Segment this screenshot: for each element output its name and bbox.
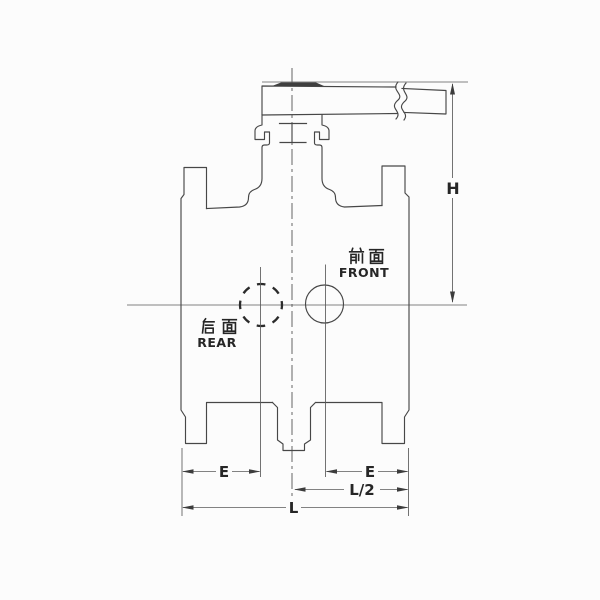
e-right-arrow-right <box>397 469 409 474</box>
e-left-label: E <box>219 463 229 481</box>
e-left-arrow-left <box>182 469 194 474</box>
front-port-circle <box>306 285 344 323</box>
length-label: L <box>289 499 299 517</box>
left-flange <box>181 168 273 444</box>
bonnet-left-profile <box>207 115 270 209</box>
h-arrow-down <box>450 292 455 304</box>
e-right-label: E <box>365 463 375 481</box>
length-arrow-right <box>397 505 409 510</box>
length-arrow-left <box>182 505 194 510</box>
bonnet-right-profile <box>315 115 383 207</box>
front-en-text: FRONT <box>339 265 389 280</box>
bottom-drain-boss <box>273 403 316 451</box>
bottom-dimensions: E E L/2 L <box>182 448 409 517</box>
half-length-label: L/2 <box>349 481 374 499</box>
handle-hub-boss <box>272 83 324 87</box>
e-left-arrow-right <box>249 469 261 474</box>
bonnet-and-stem <box>207 115 383 209</box>
half-length-arrow-left <box>294 487 306 492</box>
h-arrow-up <box>450 83 455 95</box>
e-right-arrow-left <box>326 469 338 474</box>
handle-left-bar <box>262 86 397 115</box>
half-length-arrow-right <box>397 487 409 492</box>
stem-symbol <box>280 124 307 143</box>
rear-en-text: REAR <box>197 335 236 350</box>
centerlines <box>127 68 467 497</box>
handle-right-bar <box>402 89 446 115</box>
drawing-svg: H E E L/2 L <box>0 0 600 600</box>
valve-handle <box>262 82 446 120</box>
h-label: H <box>446 179 459 198</box>
front-annotation: 前面 FRONT <box>339 248 389 280</box>
rear-annotation: 后面 REAR <box>197 318 236 350</box>
valve-technical-drawing: H E E L/2 L <box>0 0 600 600</box>
